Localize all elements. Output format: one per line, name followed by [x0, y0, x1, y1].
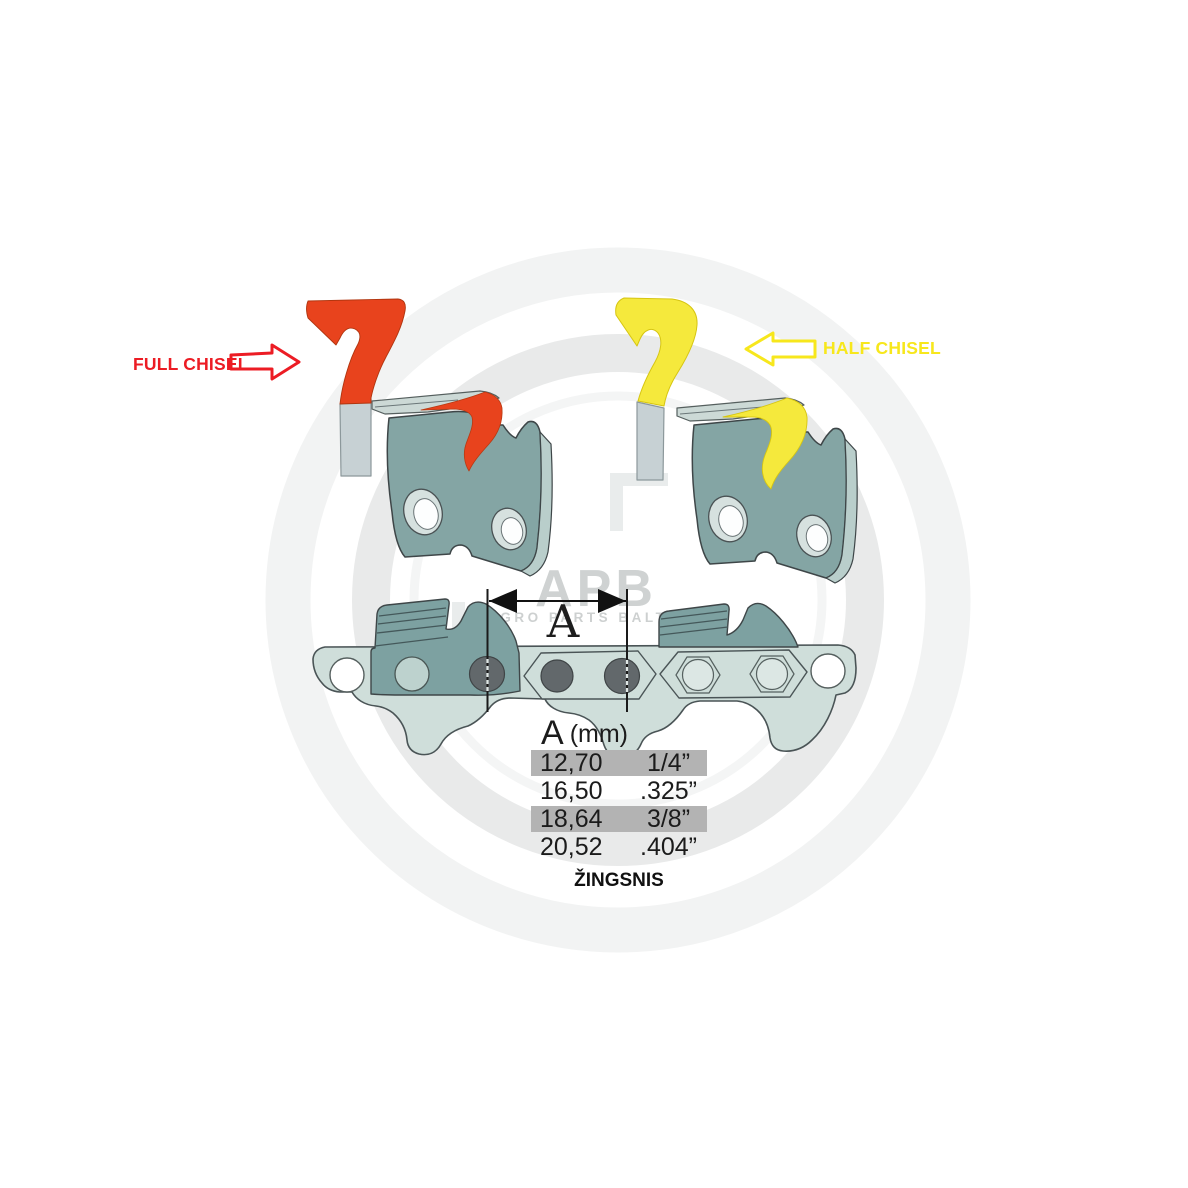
pitch-table-header-letter: A: [541, 718, 564, 748]
pitch-inch-value: .325”: [630, 777, 707, 806]
strip-hole-left: [330, 658, 364, 692]
strip-hole-right: [811, 654, 845, 688]
table-row: 16,50 .325”: [531, 778, 707, 804]
strip-rivet-middle: [541, 660, 573, 692]
half-chisel-label: HALF CHISEL: [823, 338, 941, 359]
pitch-mm-value: 20,52: [531, 833, 630, 862]
half-chisel-profile: [616, 298, 697, 480]
chainsaw-chain-diagram: APB AGRO PARTS BALTIJA: [0, 0, 1188, 1188]
pitch-table-header: A (mm): [541, 711, 707, 748]
pitch-inch-value: .404”: [630, 833, 707, 862]
half-chisel-profile-shank: [637, 402, 664, 480]
pitch-mm-value: 16,50: [531, 777, 630, 806]
watermark-corner-top: [610, 473, 668, 531]
half-chisel-cutter-link: [677, 398, 857, 583]
pitch-caption: ŽINGSNIS: [531, 870, 707, 892]
table-row: 12,70 1/4”: [531, 750, 707, 776]
strip-rivet-right: [605, 659, 640, 694]
diagram-canvas: APB AGRO PARTS BALTIJA: [0, 0, 1188, 1188]
pitch-inch-value: 3/8”: [630, 805, 707, 834]
strip-hole-cutter: [395, 657, 429, 691]
dimension-letter: A: [546, 595, 580, 648]
table-row: 20,52 .404”: [531, 834, 707, 860]
pitch-inch-value: 1/4”: [630, 749, 707, 778]
pitch-table: A (mm) 12,70 1/4” 16,50 .325” 18,64 3/8”…: [531, 711, 707, 892]
table-row: 18,64 3/8”: [531, 806, 707, 832]
pitch-table-header-unit: (mm): [570, 720, 628, 748]
pitch-mm-value: 12,70: [531, 749, 630, 778]
full-chisel-label: FULL CHISEL: [133, 354, 249, 375]
pitch-mm-value: 18,64: [531, 805, 630, 834]
full-chisel-profile-shank: [340, 399, 371, 476]
strip-hex-hole-2: [757, 659, 788, 690]
strip-hex-hole-1: [683, 660, 714, 691]
